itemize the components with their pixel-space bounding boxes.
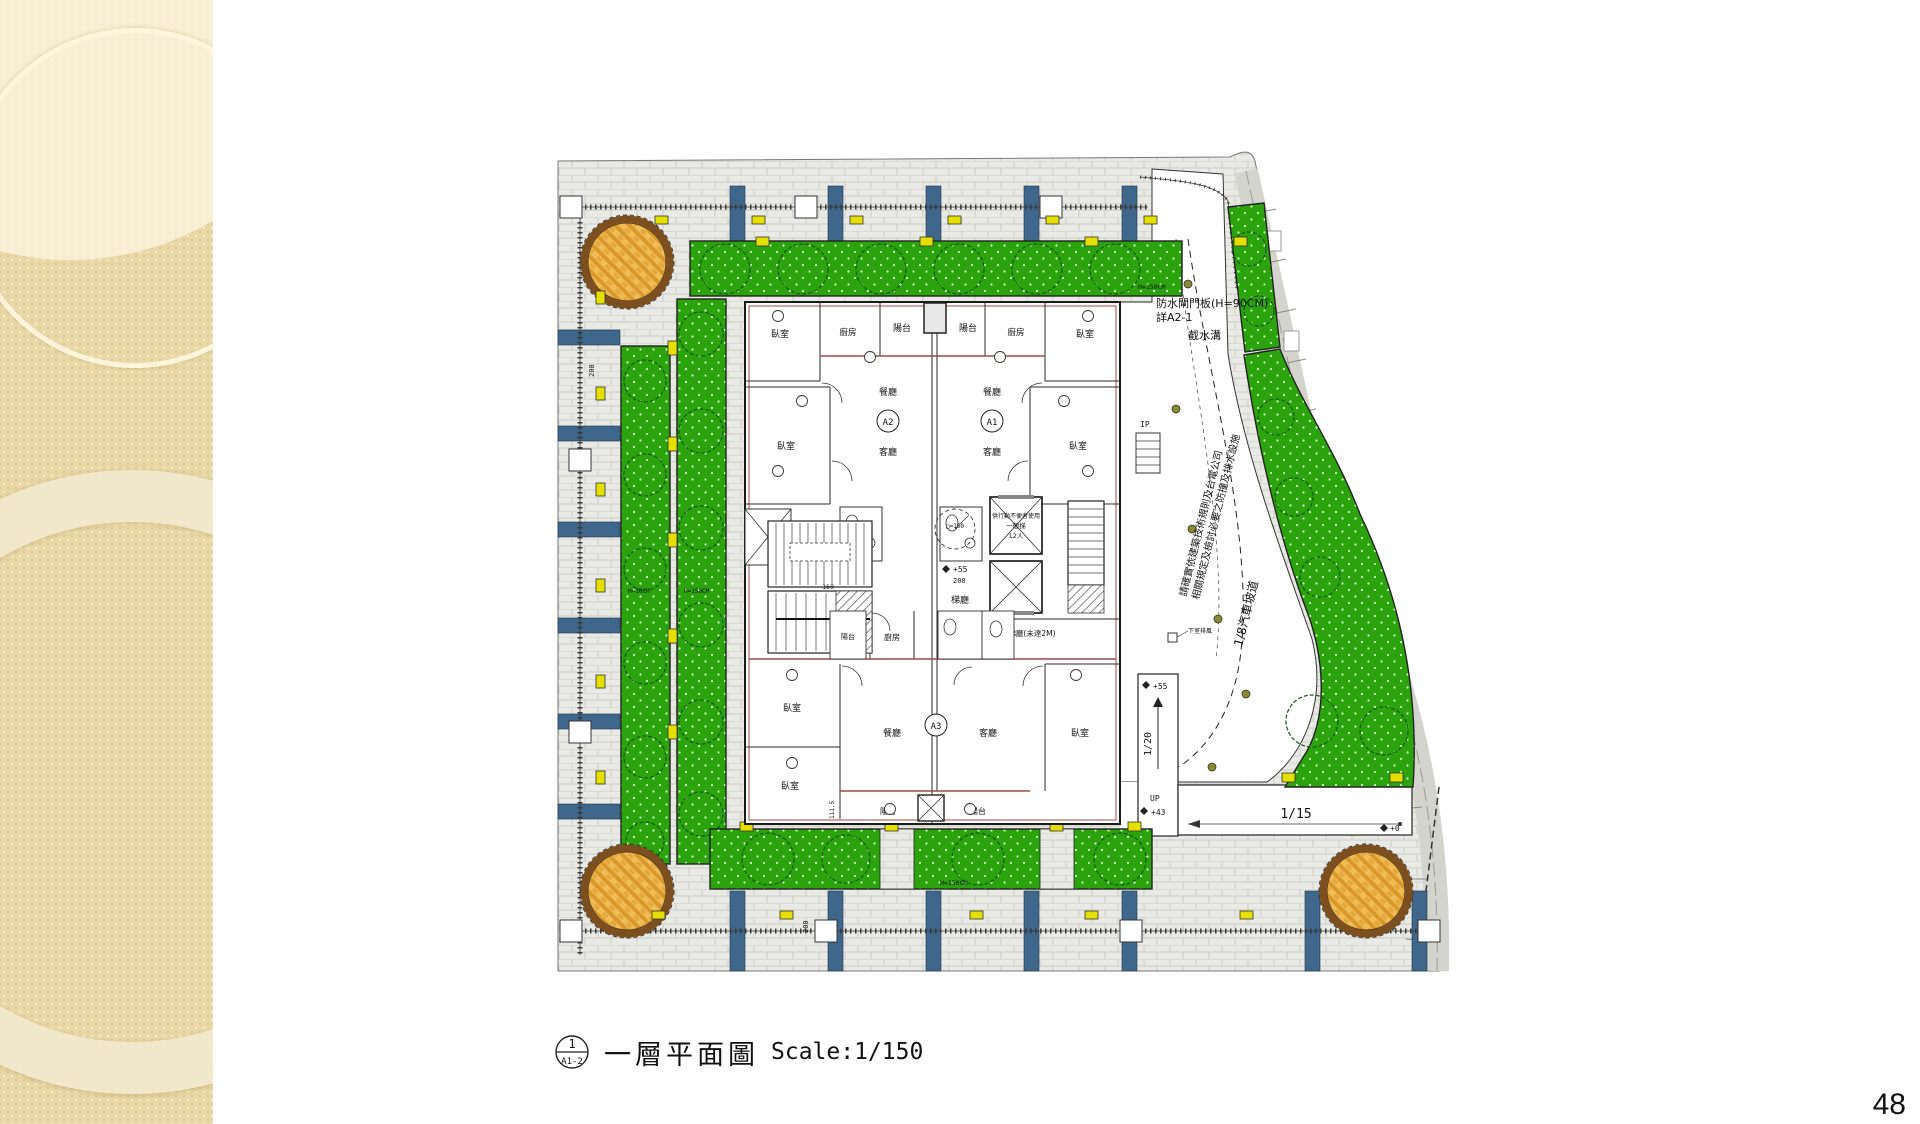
sidebar-ring-thick [0,470,213,1094]
dining-a3: 餐廳 [883,727,901,739]
dining-a2: 餐廳 [879,386,897,398]
bedroom-lower-2: 臥室 [781,780,799,792]
decorative-sidebar [0,0,213,1124]
flood-gate-note-1: 防水閘門板(H=90CM) [1156,296,1268,310]
floor-plan-drawing: +55 1/20 UP +43 1/15 +0 H=150CM [540,118,1490,1000]
bedroom-ml: 臥室 [777,440,795,452]
bedroom-lower-1: 臥室 [783,702,801,714]
building: 陽台 陽台 臥室 臥室 廚房 廚房 餐廳 餐廳 A2 A1 客廳 客廳 臥室 臥… [745,302,1120,824]
green-strip-left-outer: H=10CM [621,346,670,864]
living-a1: 客廳 [983,446,1001,458]
floor-plan: +55 1/20 UP +43 1/15 +0 H=150CM [540,118,1490,1000]
driveway-stair [1136,433,1160,473]
page-number: 48 [1873,1088,1906,1122]
ramp-15-label: 1/15 [1280,807,1311,822]
green-strip-bottom: H=150CM [710,829,1152,889]
unit-a2-label: A2 [883,418,894,428]
bedroom-tl: 臥室 [771,328,789,340]
kitchen-lower: 廚房 [884,632,900,642]
living-a2: 客廳 [879,446,897,458]
core-dim-200: 200 [953,577,966,585]
level-43: +43 [1151,808,1166,817]
balcony-upper-right: 陽台 [959,322,977,334]
ramp-1-20: +55 1/20 UP +43 [1138,674,1178,836]
level-55-ramp: +55 [1153,682,1168,691]
ramp-1-15: 1/15 +0 [1178,785,1412,835]
bedroom-tr: 臥室 [1076,328,1094,340]
hedge-150-left: H=150CM [684,588,710,595]
detail-number: 1 [568,1037,575,1051]
lift-lobby-low-label: 梯廳(未達2M) [1008,628,1055,638]
hedge-10-label: H=10CM [628,588,650,595]
unit-a1-label: A1 [987,418,998,428]
level-55-core: +55 [953,565,968,574]
drawing-title: 一層平面圖 [604,1033,759,1072]
hedge-150-top: H=150CM [1138,283,1165,291]
lift-general-label: 一般梯 [1006,521,1026,530]
dim-bottom-200: 200 [802,920,810,933]
bedroom-lower-right: 臥室 [1071,727,1089,739]
level-0: +0 [1390,824,1400,833]
core-dim-150: □=150 [946,523,964,530]
stair-dim-160: 160 [822,583,834,591]
detail-reference-symbol: 1 A1-2 [552,1032,592,1072]
living-a3: 客廳 [979,727,997,739]
ip-marker: IP [1140,420,1150,429]
exhaust-label: 下室排風 [1188,627,1212,635]
drawing-scale: Scale:1/150 [771,1039,923,1065]
dim-111-5: 111.5 [829,801,836,819]
lift-accessible-note: 供行動不便者使用 [992,512,1040,520]
lift-capacity: 12人 [1009,532,1024,540]
green-strip-left-inner: H=150CM [677,299,726,864]
green-strip-top: H=150CM [690,241,1182,296]
gutter-label: 截水溝 [1188,328,1221,342]
dim-left-200: 200 [588,364,596,377]
kitchen-right: 廚房 [1007,327,1024,338]
hedge-150-bottom: H=150CM [940,879,967,887]
balcony-upper-left: 陽台 [893,322,911,334]
drawing-caption: 1 A1-2 一層平面圖 Scale:1/150 [552,1032,923,1072]
sheet-reference: A1-2 [561,1057,583,1067]
ramp-20-label: 1/20 [1143,732,1154,756]
right-stair [1068,501,1104,613]
lift-lobby-label: 梯廳 [951,594,969,606]
balcony-small: 陽台 [841,632,855,641]
slide-canvas: +55 1/20 UP +43 1/15 +0 H=150CM [0,0,1920,1124]
unit-a3-label: A3 [931,722,942,732]
dining-a1: 餐廳 [983,386,1001,398]
kitchen-left: 廚房 [839,327,856,338]
sidebar-ring-thin [0,28,213,368]
flood-gate-note-2: 詳A2-1 [1156,310,1193,324]
bedroom-mr: 臥室 [1069,440,1087,452]
up-label: UP [1150,794,1160,803]
